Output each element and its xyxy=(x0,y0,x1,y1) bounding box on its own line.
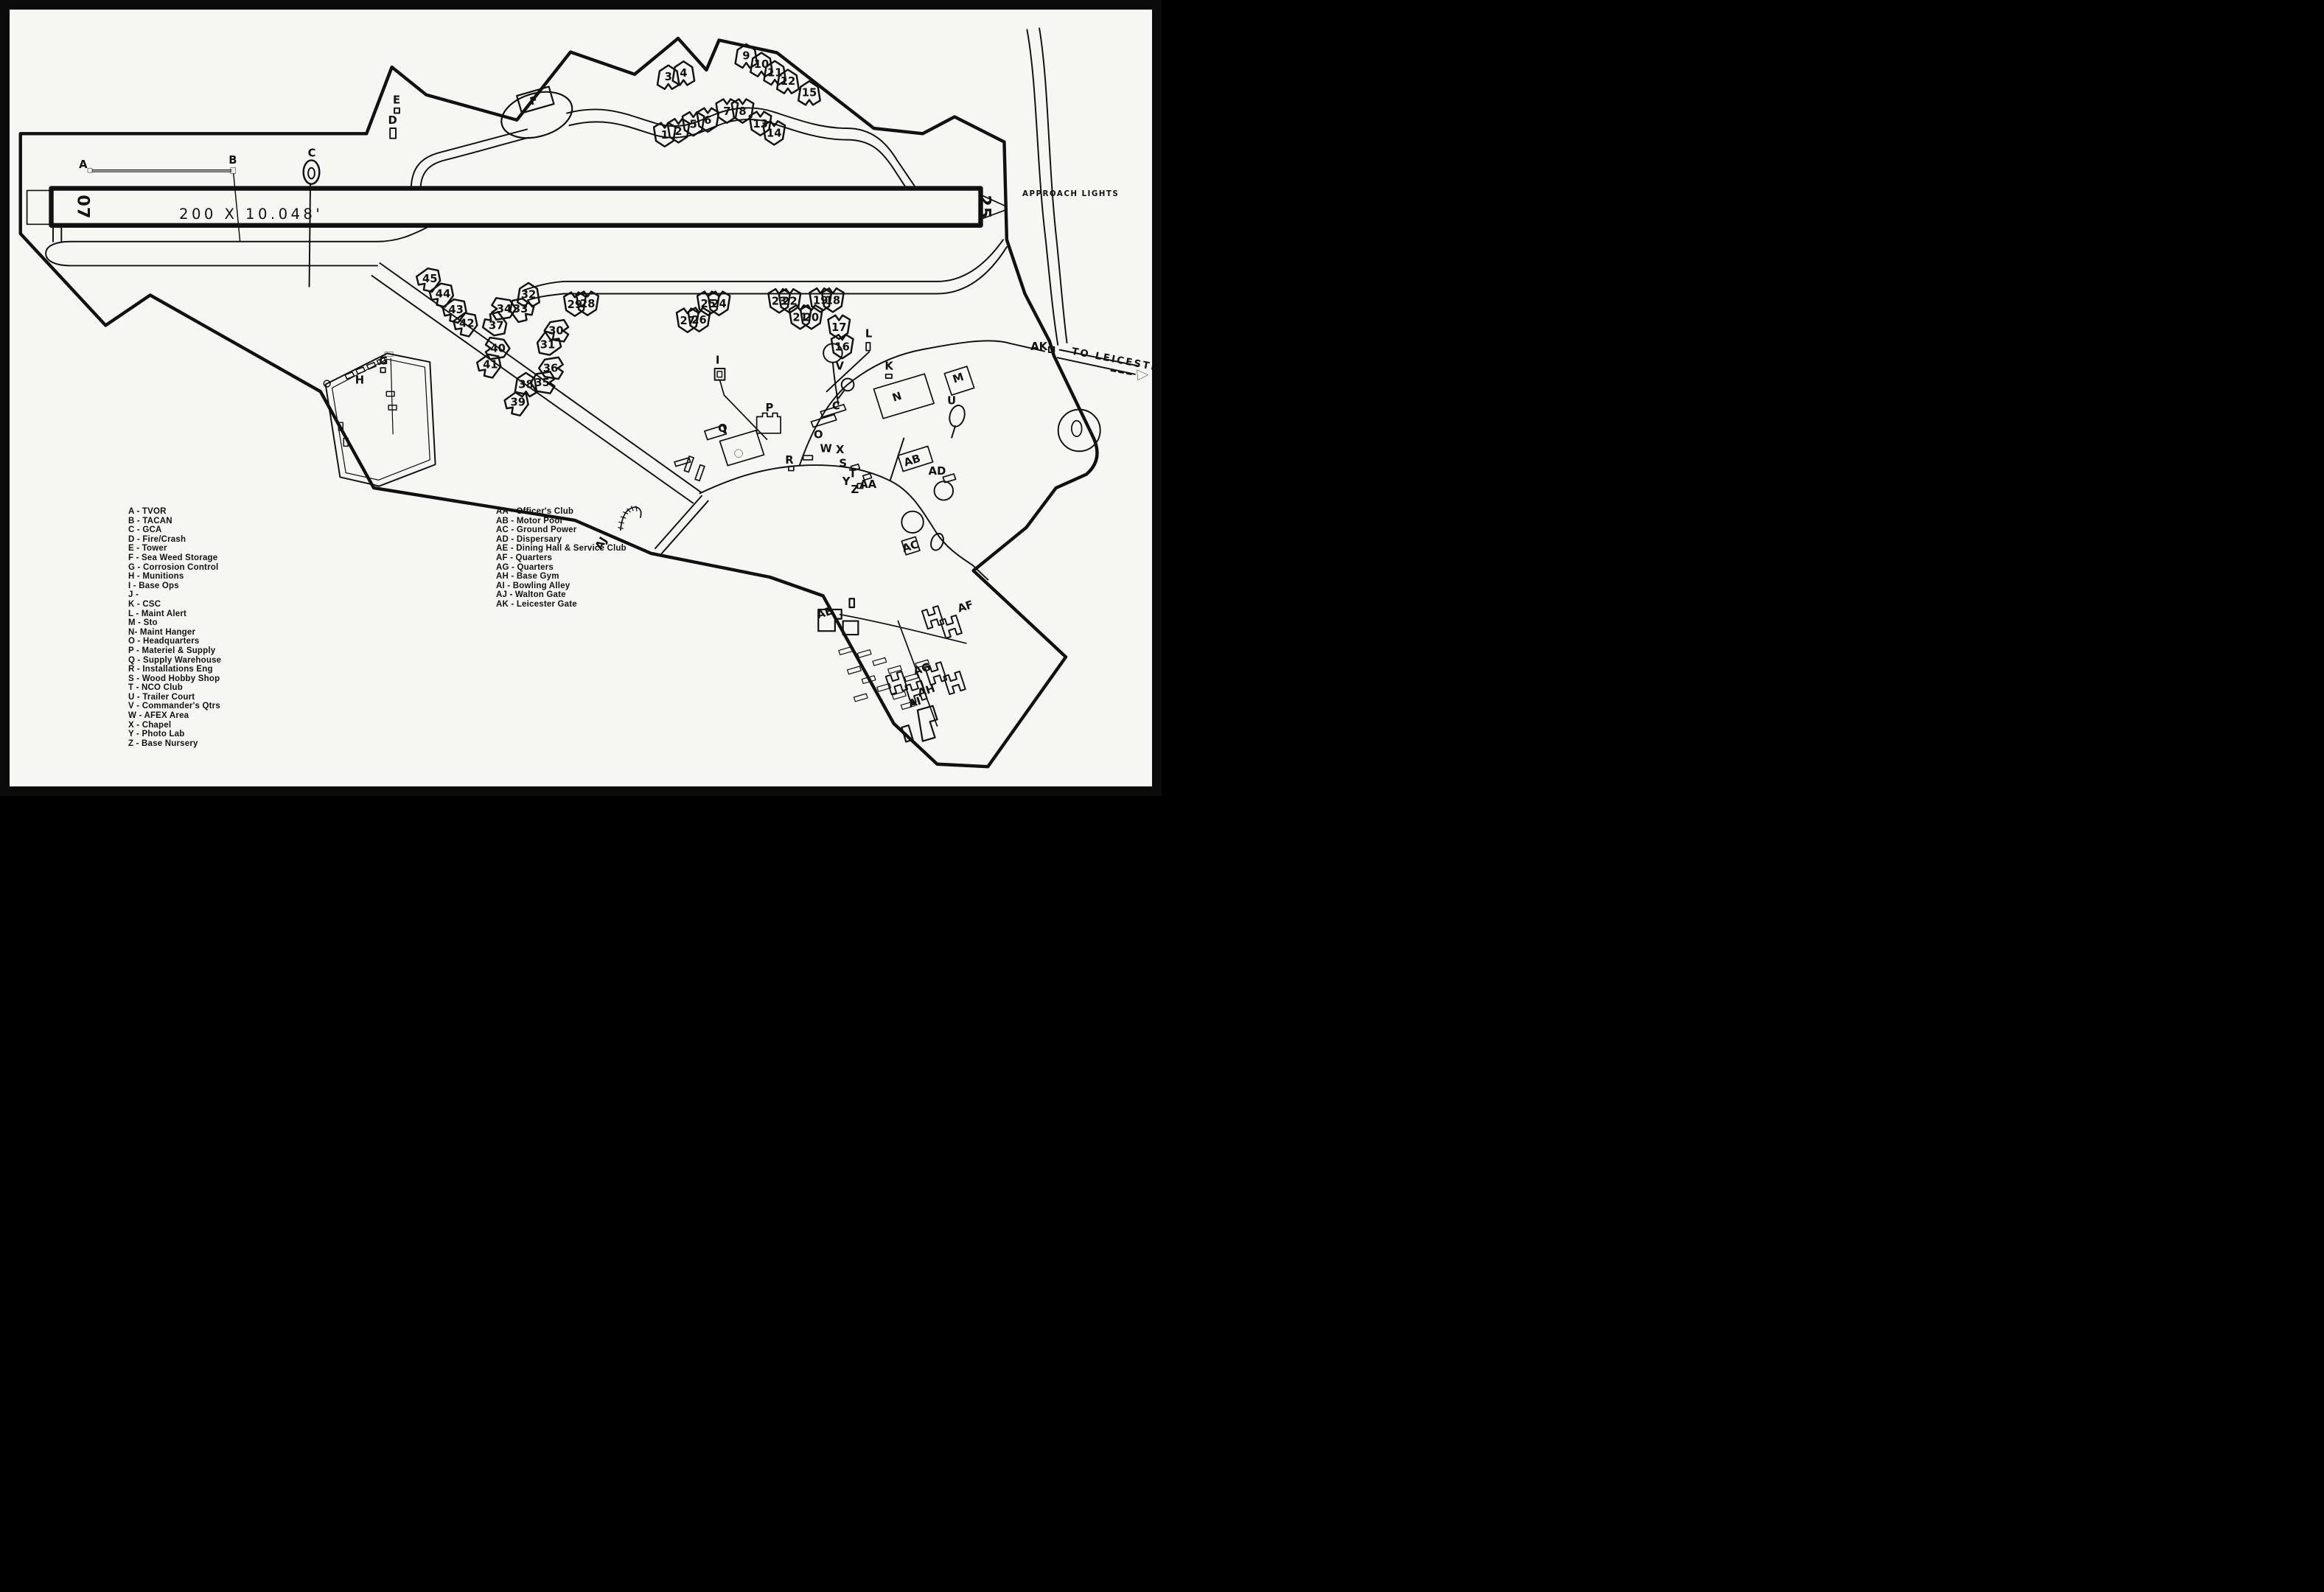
tower-building xyxy=(394,108,399,114)
legend-entry: V - Commander's Qtrs xyxy=(128,702,221,711)
pad-number: 29 xyxy=(568,298,583,311)
south-taxiway xyxy=(46,226,430,266)
facility-letter: A xyxy=(79,158,88,171)
warehouse-dot xyxy=(735,450,743,458)
legend-entry: P - Materiel & Supply xyxy=(128,646,221,656)
munitions-compound-fence xyxy=(326,353,436,486)
pad-number: 36 xyxy=(543,362,559,374)
legend-column-1: A - TVORB - TACANC - GCAD - Fire/CrashE … xyxy=(128,507,221,748)
legend-entry: M - Sto xyxy=(128,618,221,628)
facility-letter: H xyxy=(355,374,364,387)
quarters-af-2 xyxy=(940,615,961,638)
dispersal-pads-layer: 1234567891011121314151617181920212223242… xyxy=(413,44,853,419)
legend-entry: N- Maint Hanger xyxy=(128,628,221,638)
facility-letter: I xyxy=(716,355,719,367)
legend-entry: Q - Supply Warehouse xyxy=(128,656,221,666)
legend-entry: AG - Quarters xyxy=(496,563,627,573)
pad-number: 9 xyxy=(742,49,750,62)
legend-entry: AJ - Walton Gate xyxy=(496,590,627,600)
legend-entry: L - Maint Alert xyxy=(128,610,221,619)
pad-number: 44 xyxy=(436,287,451,300)
pad-number: 39 xyxy=(510,397,526,409)
legend-entry: W - AFEX Area xyxy=(128,711,221,721)
legend-entry: H - Munitions xyxy=(128,572,221,582)
facility-letter: C xyxy=(308,147,316,160)
facility-letter: W xyxy=(820,443,831,455)
dispersal-pad: 4 xyxy=(673,61,694,85)
pad-number: 27 xyxy=(680,315,696,327)
road-loop-4 xyxy=(901,512,923,533)
runway-dimensions: 200 X 10.048' xyxy=(179,206,323,223)
facility-letter: D xyxy=(388,114,397,127)
facility-letter: Z xyxy=(851,483,859,496)
pad-number: 12 xyxy=(781,75,796,88)
legend-entry: AF - Quarters xyxy=(496,554,627,563)
gca-access xyxy=(310,184,310,287)
tower-taxiway xyxy=(411,129,529,188)
facility-letter: X xyxy=(836,444,845,456)
runway-overrun-left xyxy=(27,190,52,224)
legend-entry: E - Tower xyxy=(128,544,221,554)
photo-frame: 1234567891011121314151617181920212223242… xyxy=(0,0,1162,796)
facility-letter: L xyxy=(865,328,872,341)
tech-site-roads xyxy=(655,341,1044,579)
facility-letter: E xyxy=(393,94,400,106)
pad-number: 4 xyxy=(680,67,687,80)
pad-number: 16 xyxy=(834,341,850,354)
pad-number: 7 xyxy=(723,105,730,118)
legend-entry: AB - Motor Pool xyxy=(496,517,627,526)
facility-letter: K xyxy=(884,360,893,372)
facility-letter: N xyxy=(890,390,903,405)
facility-letter: R xyxy=(785,454,794,467)
gca-loop-inner xyxy=(308,168,315,179)
trailer-court-loop xyxy=(947,404,967,428)
trailer-court-stem xyxy=(952,426,955,438)
legend-entry: AC - Ground Power xyxy=(496,526,627,535)
legend-entry: F - Sea Weed Storage xyxy=(128,554,221,563)
facility-letter: AD xyxy=(929,465,946,478)
legend-entry: B - TACAN xyxy=(128,517,221,526)
gca-loop xyxy=(304,160,320,184)
east-turnaround xyxy=(1058,410,1100,452)
munitions-bunkers xyxy=(338,357,397,446)
runway-end-25: 25 xyxy=(974,195,994,219)
dispersal-pad: 3 xyxy=(657,66,679,89)
facility-letter: AG xyxy=(912,660,932,677)
pad-number: 40 xyxy=(490,343,506,355)
quarters-ag-4 xyxy=(943,671,965,694)
facility-letter: O xyxy=(814,429,823,441)
facility-letter: P xyxy=(765,402,773,414)
munitions-compound-inner-fence xyxy=(332,358,430,480)
pad-number: 3 xyxy=(665,71,672,83)
legend-entry: C - GCA xyxy=(128,526,221,535)
legend-entry: X - Chapel xyxy=(128,721,221,730)
middle-taxiway xyxy=(524,240,1007,300)
pad-number: 2 xyxy=(674,125,682,138)
pad-number: 37 xyxy=(489,319,504,332)
facility-letter: V xyxy=(836,360,845,372)
legend-entry: J - xyxy=(128,590,221,600)
legend-entry: G - Corrosion Control xyxy=(128,563,221,573)
legend-entry: K - CSC xyxy=(128,600,221,610)
legend-entry: D - Fire/Crash xyxy=(128,535,221,545)
dispersal-pad: 36 xyxy=(539,357,562,379)
legend-entry: AD - Dispersary xyxy=(496,535,627,545)
facility-letter: G xyxy=(379,355,388,368)
pad-number: 5 xyxy=(690,119,697,131)
base-ops-building xyxy=(715,369,725,380)
fire-crash-building xyxy=(390,128,396,139)
facility-letter: Q xyxy=(718,422,727,435)
pad-number: 35 xyxy=(534,377,550,389)
quarters-af-1 xyxy=(922,606,943,629)
road-loop-3 xyxy=(935,481,954,500)
legend-entry: Z - Base Nursery xyxy=(128,739,221,749)
legend-entry: AI - Bowling Alley xyxy=(496,582,627,591)
facility-letter: U xyxy=(947,394,956,407)
legend-entry: AK - Leicester Gate xyxy=(496,600,627,610)
east-teardrop xyxy=(1072,421,1082,436)
dispersal-pad: 39 xyxy=(501,386,534,418)
storage-loop-taxiway xyxy=(496,84,578,145)
facility-letter: Y xyxy=(842,475,851,488)
approach-lights-label: APPROACH LIGHTS xyxy=(1022,189,1119,198)
pad-number: 14 xyxy=(767,128,782,140)
tvor-structure xyxy=(88,168,92,172)
runway-end-07: 07 xyxy=(73,195,92,219)
legend-entry: O - Headquarters xyxy=(128,637,221,646)
pad-number: 41 xyxy=(483,359,498,371)
legend-entry: U - Trailer Court xyxy=(128,693,221,702)
pad-number: 45 xyxy=(422,273,438,285)
legend-entry: S - Wood Hobby Shop xyxy=(128,674,221,684)
facility-letter: AK xyxy=(1030,341,1047,353)
pad-number: 10 xyxy=(754,58,770,71)
legend-entry: AA - Officer's Club xyxy=(496,507,627,517)
tacan-structure xyxy=(231,168,236,174)
pad-number: 8 xyxy=(739,105,746,118)
quarters-ag-1 xyxy=(886,671,907,694)
facility-letter: S xyxy=(839,458,847,470)
tvor-tacan-cable xyxy=(92,170,231,172)
legend-entry: AH - Base Gym xyxy=(496,572,627,582)
pad-number: 17 xyxy=(831,321,847,334)
map-sheet: 1234567891011121314151617181920212223242… xyxy=(10,10,1152,786)
legend-entry: T - NCO Club xyxy=(128,683,221,693)
pad-number: 23 xyxy=(772,296,787,308)
pad-number: 1 xyxy=(661,129,669,142)
legend-entry: AE - Dining Hall & Service Club xyxy=(496,544,627,554)
pad-number: 21 xyxy=(792,312,808,324)
legend-entry: I - Base Ops xyxy=(128,582,221,591)
facility-letter: M xyxy=(951,371,965,386)
public-road-east xyxy=(1027,28,1067,344)
facility-letter: AA xyxy=(859,478,876,491)
pad-number: 38 xyxy=(518,378,534,391)
facility-letter: B xyxy=(228,154,237,167)
facility-letter: AF xyxy=(956,598,975,615)
legend-entry: Y - Photo Lab xyxy=(128,730,221,739)
pad-number: 6 xyxy=(704,114,711,127)
legend-entry: A - TVOR xyxy=(128,507,221,517)
legend-column-2: AA - Officer's ClubAB - Motor PoolAC - G… xyxy=(496,507,627,610)
corrosion-control-building xyxy=(380,368,385,372)
pad-number: 43 xyxy=(448,304,464,316)
legend-entry: R - Installations Eng xyxy=(128,665,221,674)
pad-number: 15 xyxy=(802,87,817,99)
pad-number: 30 xyxy=(548,325,564,338)
facility-letter: C xyxy=(832,400,840,413)
base-ops-inner xyxy=(717,371,722,377)
pad-number: 31 xyxy=(540,339,556,352)
